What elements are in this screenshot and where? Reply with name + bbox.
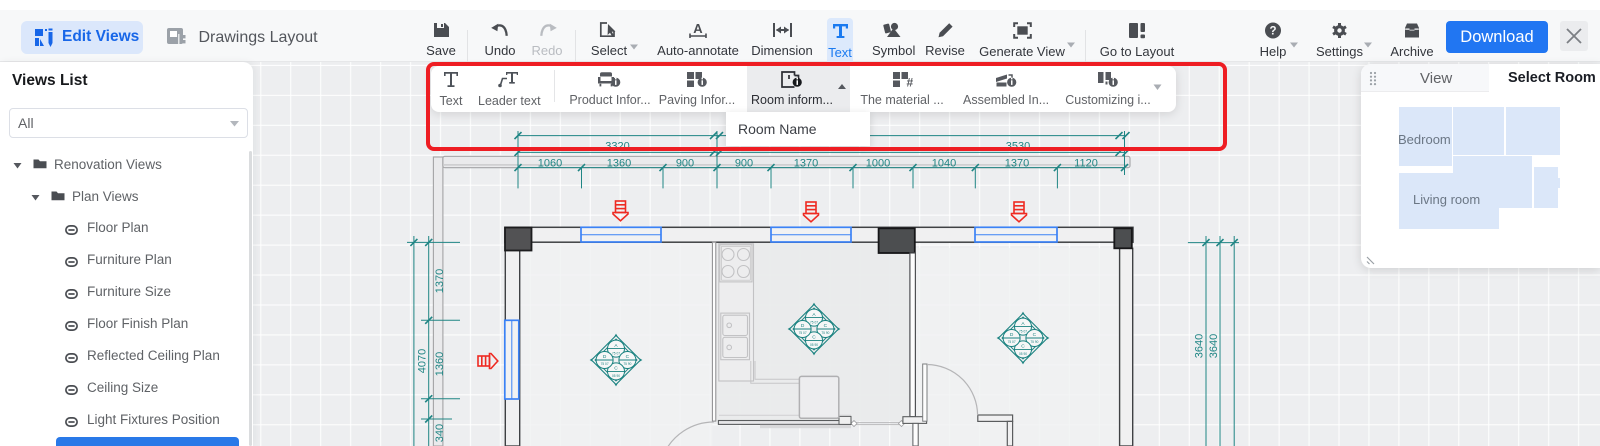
svg-text:1000: 1000 <box>866 158 890 170</box>
svg-text:A: A <box>693 22 703 36</box>
svg-text:1360: 1360 <box>607 158 631 170</box>
svg-text:?: ? <box>1269 26 1276 38</box>
svg-text:1370: 1370 <box>1005 158 1029 170</box>
svg-text:900: 900 <box>735 158 753 170</box>
svg-text:1370: 1370 <box>434 269 446 293</box>
svg-text:4070: 4070 <box>417 349 429 373</box>
svg-text:340: 340 <box>434 424 446 442</box>
svg-text:1370: 1370 <box>794 158 818 170</box>
svg-text:3640: 3640 <box>1208 334 1220 358</box>
svg-text:1120: 1120 <box>1074 158 1098 170</box>
svg-text:1060: 1060 <box>538 158 562 170</box>
svg-text:900: 900 <box>676 158 694 170</box>
svg-text:3640: 3640 <box>1194 334 1206 358</box>
svg-text:1040: 1040 <box>932 158 956 170</box>
svg-text:1360: 1360 <box>434 352 446 376</box>
